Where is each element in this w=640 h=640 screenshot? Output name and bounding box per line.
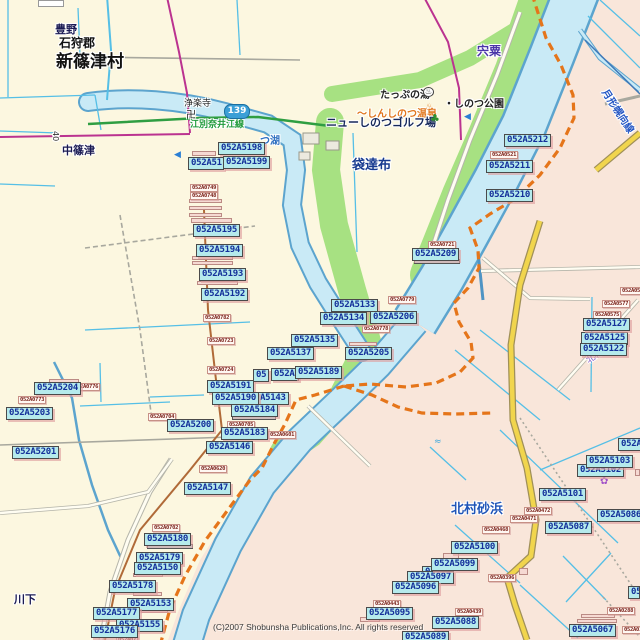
arrow-icon: ◀ [464,113,471,122]
map-code-label[interactable]: 052A5100 [451,541,498,554]
arrow-icon: ◀ [174,151,181,160]
map-code-label-small[interactable]: 052A0471 [510,515,538,523]
map-code-label-small[interactable]: 052A0521 [490,151,518,159]
map-code-label[interactable]: 052A5189 [295,366,342,379]
map-code-label-sliver [635,469,640,476]
map-code-label[interactable]: 052A5067 [569,624,616,637]
map-code-label-sliver [189,213,222,217]
copyright-notice: (C)2007 Shobunsha Publications,Inc. All … [213,622,423,632]
flower-icon: ✿ [600,477,608,487]
map-code-label[interactable]: 052A5195 [193,224,240,237]
tree-icon: ♣ [430,113,440,124]
map-code-label[interactable]: 052A5135 [291,334,338,347]
map-code-label[interactable]: 052A5096 [392,581,439,594]
place-label: ニューしのつゴルフ場 [326,114,436,130]
map-code-label[interactable]: 052A5137 [267,347,314,360]
marsh-icon: ≈ [434,438,442,447]
map-code-label-sliver [577,619,617,623]
map-code-label-small[interactable]: 052A0601 [268,431,296,439]
place-label: 中篠津 [62,142,95,158]
map-code-label-small[interactable]: 052A012 [622,626,640,634]
place-label: 40 [51,131,60,141]
map-code-label[interactable]: 052A5134 [320,312,367,325]
map-code-label[interactable]: 052A5101 [539,488,586,501]
map-code-label-small[interactable]: 052A0472 [524,507,552,515]
map-code-label[interactable]: 052A5127 [583,318,630,331]
map-code-label[interactable]: 052A5150 [134,562,181,575]
map-code-label[interactable]: 052A5192 [201,288,248,301]
map-code-label-sliver [192,261,233,265]
map-code-label[interactable]: 052A5199 [223,156,270,169]
map-code-label-small[interactable]: 052A0702 [152,524,180,532]
map-code-label[interactable]: 052A5211 [486,160,533,173]
map-code-label-small[interactable]: 052A0396 [488,574,516,582]
map-code-label[interactable]: 052A5209 [412,248,459,261]
route-shield-139: 139 [224,104,250,119]
map-code-label-small[interactable]: 052A0782 [203,314,231,322]
map-code-label-small[interactable]: 052A0724 [207,366,235,374]
map-code-label[interactable]: 052A5146 [206,441,253,454]
map-code-label[interactable]: 052A5099 [431,558,478,571]
map-code-label[interactable]: 052A5200 [167,419,214,432]
map-code-label[interactable]: 052A5178 [109,580,156,593]
map-code-label[interactable]: 052A5176 [91,625,138,638]
map-code-label[interactable]: 052A5087 [545,521,592,534]
map-code-label[interactable]: 05 [628,586,640,599]
map-code-label[interactable]: 052A5210 [486,189,533,202]
map-code-label[interactable]: 052A5180 [144,533,191,546]
map-code-label[interactable]: 052A5198 [218,142,265,155]
place-label: 新篠津村 [56,47,124,72]
map-code-label-small[interactable]: 052A05 [620,287,640,295]
map-code-label-small[interactable]: 052A0620 [199,465,227,473]
map-code-label-sliver [189,206,222,210]
map-code-label[interactable]: 052A5122 [580,343,627,356]
map-code-label-small[interactable]: 052A0773 [18,396,46,404]
map-code-label[interactable]: 052A5147 [184,482,231,495]
map-code-label-sliver [38,0,64,7]
map-code-label-sliver [192,151,216,156]
map-code-label-sliver [349,342,377,346]
map-code-label[interactable]: 052A5205 [345,347,392,360]
map-code-label-small[interactable]: 052A0439 [455,608,483,616]
place-label: ・しのつ公園 [444,95,504,110]
map-code-label-small[interactable]: 052A0749 [190,184,218,192]
map-code-label[interactable]: 052A5201 [12,446,59,459]
map-code-label[interactable]: 052A5086 [597,509,640,522]
map-code-label[interactable]: 052A5095 [366,607,413,620]
map-code-label[interactable]: 052A5203 [6,407,53,420]
map-code-label[interactable]: 052A51 [618,438,640,451]
place-label: 川下 [14,591,36,607]
map-code-label[interactable]: 052A5103 [586,455,633,468]
map-code-label[interactable]: 05 [253,369,269,382]
place-label: 北村砂浜 [451,498,503,517]
map-code-label-small[interactable]: 052A0778 [362,325,390,333]
place-label: 袋達布 [352,154,391,173]
map-code-label-small[interactable]: 052A0577 [602,300,630,308]
map-code-label[interactable]: 052A5193 [199,268,246,281]
map-code-label-sliver [197,281,238,285]
map-code-label[interactable]: 052A51 [188,157,224,170]
map-code-label-small[interactable]: 052A0468 [482,526,510,534]
map-code-label-sliver [519,568,528,575]
place-label: 宍粟 [477,42,501,59]
map-canvas[interactable]: 139 (C)2007 Shobunsha Publications,Inc. … [0,0,640,640]
map-code-label-small[interactable]: 052A0748 [190,192,218,200]
map-code-label[interactable]: 052A5088 [432,616,479,629]
map-code-label-sliver [191,218,232,223]
map-code-label[interactable]: 052A5204 [34,382,81,395]
map-code-label-small[interactable]: 052A0288 [607,607,635,615]
map-code-label-small[interactable]: 052A0779 [388,296,416,304]
map-code-label[interactable]: 052A5206 [370,311,417,324]
map-code-label[interactable]: 052A5194 [196,244,243,257]
map-code-label-small[interactable]: 052A0723 [207,337,235,345]
map-code-label[interactable]: 052A5183 [221,427,268,440]
map-code-label[interactable]: 052A5184 [231,404,278,417]
map-code-label[interactable]: 052A5212 [504,134,551,147]
map-code-label[interactable]: 052A5089 [402,631,449,640]
